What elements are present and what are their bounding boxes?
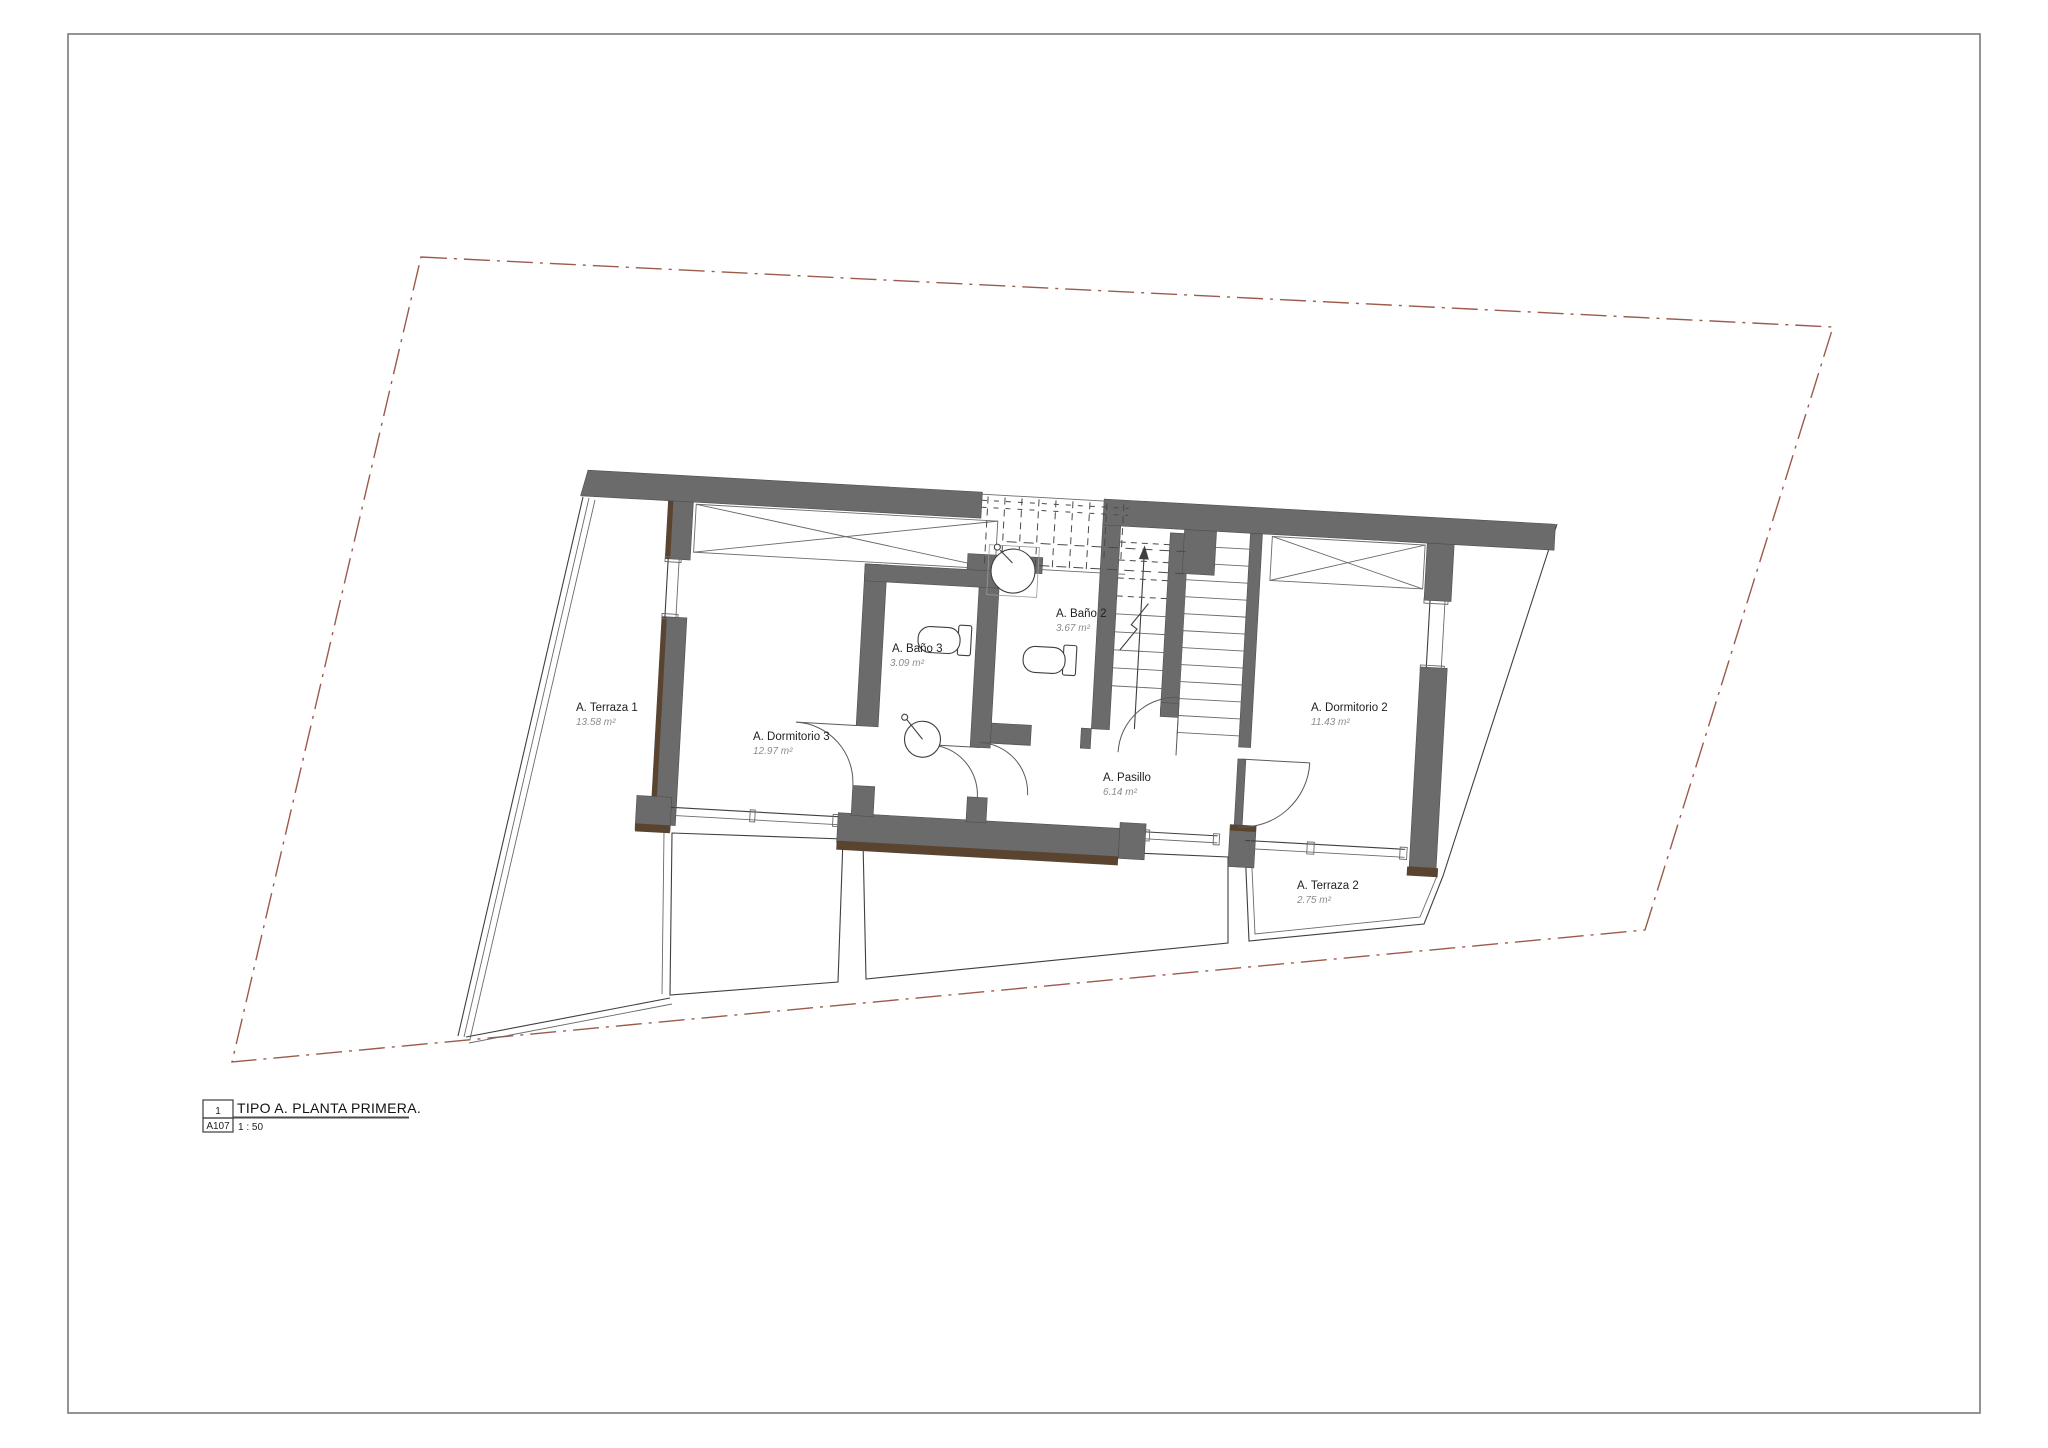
patio-right-outline <box>863 841 1228 979</box>
drawing-sheet: A. Terraza 1 13.58 m² A. Dormitorio 3 12… <box>0 0 2048 1448</box>
stair-break-line <box>1120 602 1149 651</box>
room-label-bano3: A. Baño 3 <box>892 643 943 655</box>
room-area-dormitorio3: 12.97 m² <box>753 746 793 757</box>
view-title: TIPO A. PLANTA PRIMERA. <box>237 1100 421 1116</box>
interior-walls <box>851 512 1262 838</box>
title-block: 1 A107 TIPO A. PLANTA PRIMERA. 1 : 50 <box>203 1100 421 1133</box>
stair-direction-arrow <box>1134 555 1144 729</box>
room-label-dormitorio3: A. Dormitorio 3 <box>753 731 830 743</box>
toilet-bano2 <box>1022 643 1077 676</box>
page-border <box>68 34 1980 1413</box>
exterior-walls <box>562 470 1556 889</box>
sheet-number: A107 <box>206 1121 230 1132</box>
room-area-bano3: 3.09 m² <box>890 658 925 669</box>
room-label-pasillo: A. Pasillo <box>1103 772 1151 784</box>
room-area-bano2: 3.67 m² <box>1056 623 1091 634</box>
room-area-terraza2: 2.75 m² <box>1296 895 1332 906</box>
room-area-pasillo: 6.14 m² <box>1103 787 1138 798</box>
room-label-terraza2: A. Terraza 2 <box>1297 880 1359 892</box>
building-side-edge <box>1443 524 1557 876</box>
room-label-terraza1: A. Terraza 1 <box>576 702 638 714</box>
patio-left-outline <box>670 833 843 995</box>
shower-bano3 <box>900 714 942 758</box>
detail-number: 1 <box>215 1106 221 1117</box>
room-area-dormitorio2: 11.43 m² <box>1311 717 1350 728</box>
room-label-bano2: A. Baño 2 <box>1056 608 1107 620</box>
door-arc-bano2 <box>978 742 1031 795</box>
room-area-terraza1: 13.58 m² <box>576 717 616 728</box>
view-scale: 1 : 50 <box>238 1122 263 1133</box>
room-label-dormitorio2: A. Dormitorio 2 <box>1311 702 1388 714</box>
door-arc-dormitorio2 <box>1238 759 1310 831</box>
building-plan <box>562 470 1556 889</box>
